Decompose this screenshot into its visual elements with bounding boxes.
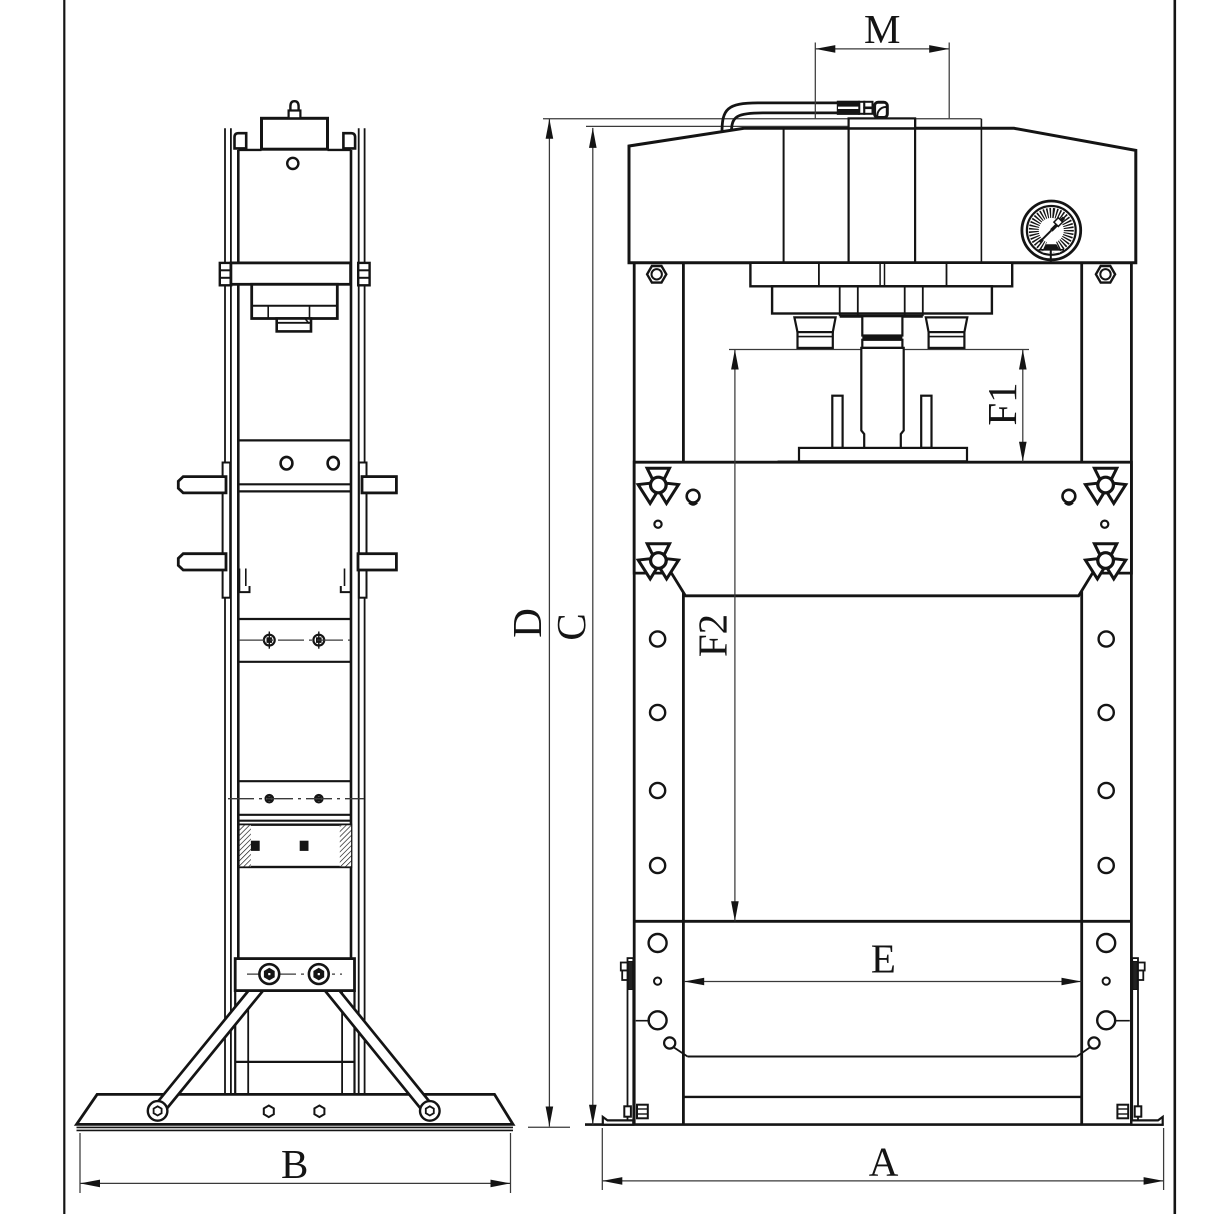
svg-text:F1: F1 (979, 382, 1025, 425)
svg-text:C: C (548, 613, 594, 640)
svg-text:M: M (864, 6, 900, 52)
svg-text:A: A (869, 1139, 899, 1185)
svg-text:B: B (281, 1141, 308, 1187)
svg-text:E: E (871, 936, 896, 982)
svg-text:D: D (504, 608, 550, 638)
svg-text:F2: F2 (690, 614, 736, 657)
